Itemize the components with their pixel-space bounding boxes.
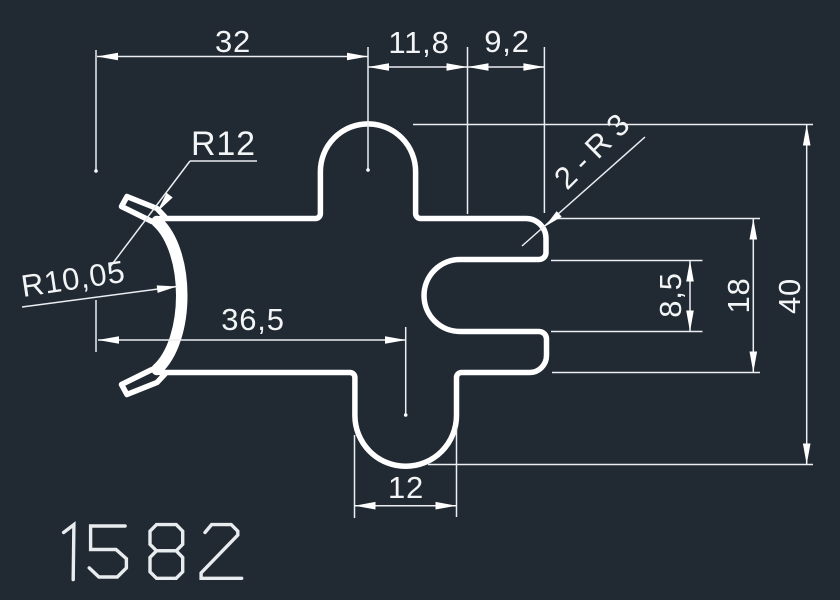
svg-text:8,5: 8,5 xyxy=(653,272,688,318)
svg-text:32: 32 xyxy=(215,24,251,59)
svg-text:12: 12 xyxy=(388,470,424,505)
svg-text:11,8: 11,8 xyxy=(388,25,449,60)
svg-text:36,5: 36,5 xyxy=(221,302,285,337)
svg-text:R12: R12 xyxy=(191,125,256,163)
svg-text:9,2: 9,2 xyxy=(484,24,530,59)
svg-text:40: 40 xyxy=(772,278,807,314)
svg-text:18: 18 xyxy=(721,277,756,313)
